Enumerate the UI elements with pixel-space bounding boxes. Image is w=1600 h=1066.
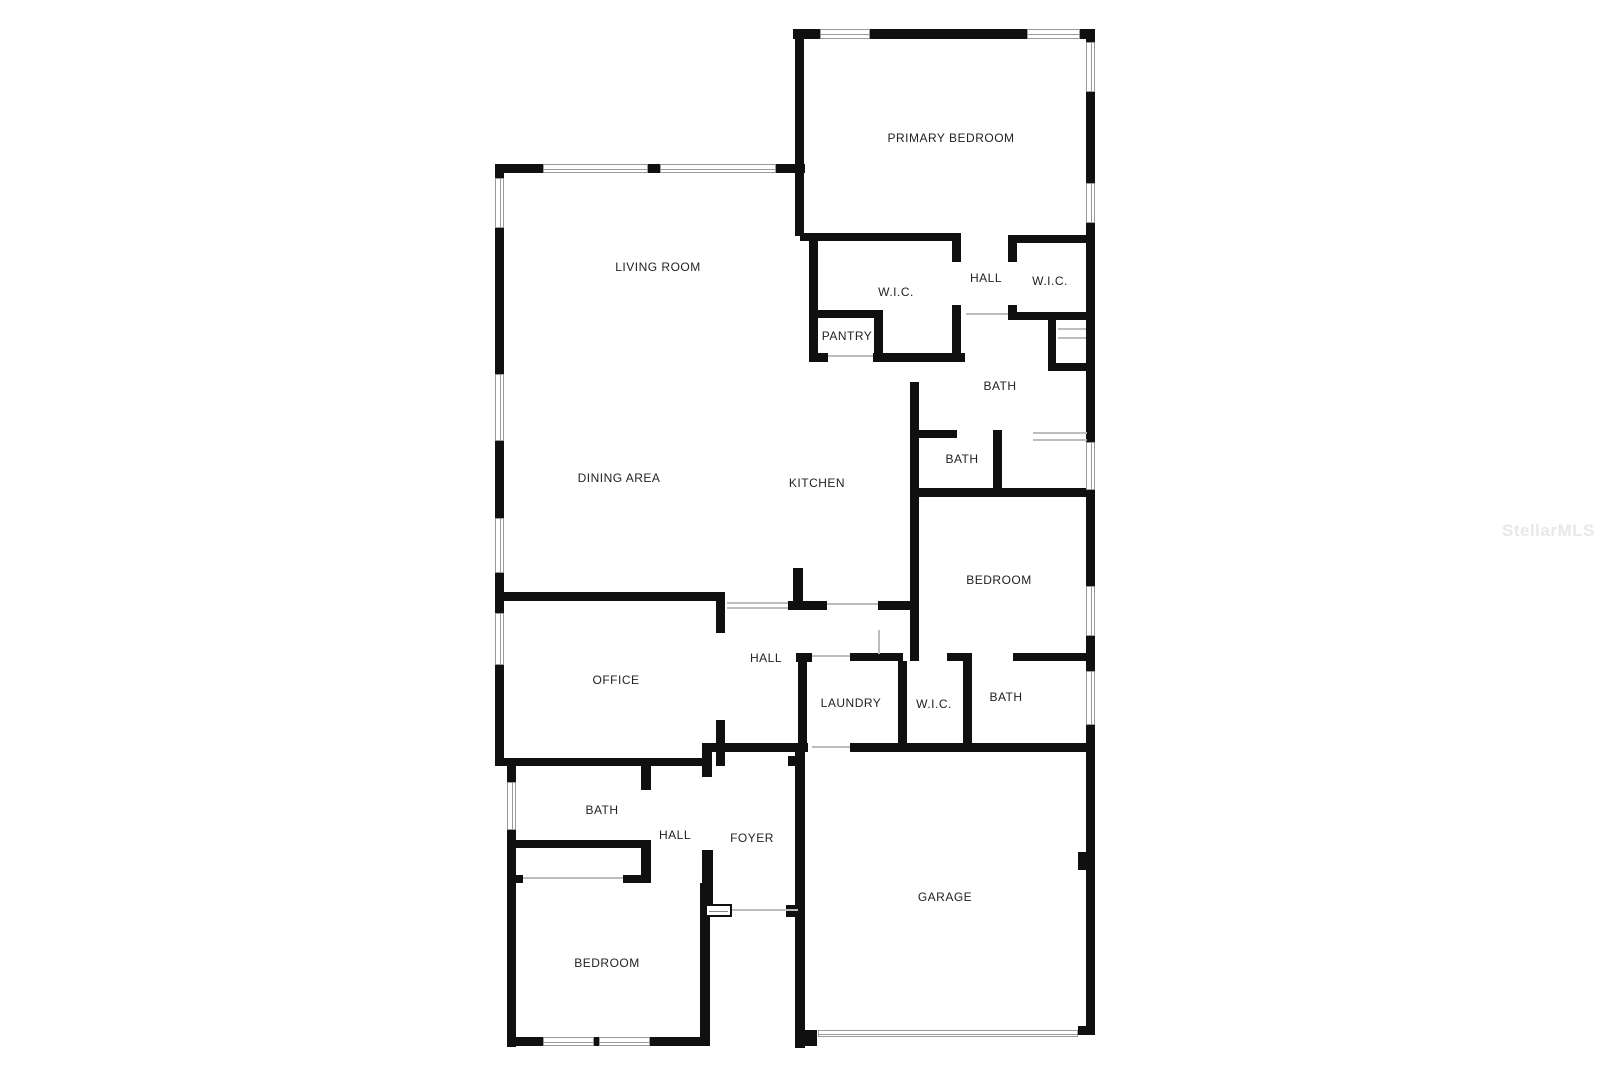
window xyxy=(1086,42,1095,92)
room-label: BATH xyxy=(945,452,978,466)
opening-line xyxy=(812,655,850,657)
wall xyxy=(963,661,972,745)
opening-line xyxy=(1033,439,1087,441)
window xyxy=(1086,671,1095,725)
wall xyxy=(641,766,651,790)
room-label: W.I.C. xyxy=(1032,274,1068,288)
wall xyxy=(1008,235,1095,243)
window xyxy=(543,1037,594,1046)
opening-line xyxy=(827,603,878,605)
opening-line xyxy=(727,602,788,604)
room-label: HALL xyxy=(659,828,691,842)
window xyxy=(820,29,870,39)
wall xyxy=(912,488,1090,497)
wall xyxy=(1086,29,1095,1035)
wall xyxy=(898,661,907,745)
room-label: LAUNDRY xyxy=(821,696,882,710)
opening-line xyxy=(812,746,850,748)
wall xyxy=(1048,363,1086,371)
room-label: W.I.C. xyxy=(916,697,952,711)
wall xyxy=(809,310,883,318)
wall xyxy=(788,756,796,766)
room-label: BEDROOM xyxy=(574,956,640,970)
wall xyxy=(795,745,805,1048)
wall xyxy=(702,743,712,777)
wall xyxy=(623,875,651,883)
window xyxy=(507,782,516,830)
room-label: DINING AREA xyxy=(578,471,661,485)
room-label: BATH xyxy=(585,803,618,817)
wall xyxy=(1013,653,1090,661)
wall xyxy=(710,743,808,752)
window xyxy=(543,164,648,173)
wall xyxy=(798,653,807,752)
wall xyxy=(495,164,504,766)
opening-line xyxy=(966,313,1008,315)
opening-line xyxy=(523,877,623,879)
window xyxy=(660,164,776,173)
wall xyxy=(795,29,804,236)
room-label: LIVING ROOM xyxy=(615,260,701,274)
wall xyxy=(795,1030,817,1046)
window xyxy=(1086,183,1095,223)
window xyxy=(1027,29,1080,39)
room-label: BEDROOM xyxy=(966,573,1032,587)
window xyxy=(1086,586,1095,636)
wall xyxy=(850,743,1090,752)
window xyxy=(495,374,504,441)
room-label: W.I.C. xyxy=(878,285,914,299)
floor-plan: StellarMLS PRIMARY BEDROOMLIVING ROOMW.I… xyxy=(0,0,1600,1066)
room-label: BATH xyxy=(983,379,1016,393)
wall xyxy=(918,430,957,438)
wall xyxy=(495,758,710,766)
wall xyxy=(512,840,650,848)
window xyxy=(495,613,504,665)
stellar-mls-watermark: StellarMLS xyxy=(1502,521,1595,541)
window xyxy=(818,1030,1078,1037)
room-label: GARAGE xyxy=(918,890,972,904)
opening-line xyxy=(1058,337,1086,339)
opening-line xyxy=(1058,328,1086,330)
room-label: BATH xyxy=(989,690,1022,704)
wall xyxy=(800,233,960,241)
room-label: PANTRY xyxy=(822,329,873,343)
wall xyxy=(1078,852,1086,870)
wall xyxy=(809,233,818,361)
room-label: OFFICE xyxy=(593,673,640,687)
window xyxy=(1086,442,1095,490)
room-label: FOYER xyxy=(730,831,774,845)
front-door-symbol xyxy=(705,904,732,917)
window xyxy=(495,518,504,573)
room-label: HALL xyxy=(750,651,782,665)
opening-line xyxy=(1033,432,1087,434)
wall xyxy=(910,382,919,661)
room-label: KITCHEN xyxy=(789,476,845,490)
wall xyxy=(850,653,903,661)
opening-line xyxy=(727,607,788,609)
door-opening-gap xyxy=(952,262,961,305)
wall xyxy=(495,592,725,601)
room-label: HALL xyxy=(970,271,1002,285)
wall xyxy=(716,592,725,633)
window xyxy=(599,1037,650,1046)
wall xyxy=(508,875,523,883)
wall xyxy=(947,653,972,661)
opening-line xyxy=(878,630,880,654)
room-label: PRIMARY BEDROOM xyxy=(887,131,1014,145)
wall xyxy=(1078,1026,1095,1035)
wall xyxy=(793,568,803,609)
wall xyxy=(993,430,1002,497)
wall xyxy=(1008,312,1088,320)
door-opening-gap xyxy=(1008,262,1017,305)
window xyxy=(495,178,504,228)
opening-line xyxy=(828,355,873,357)
